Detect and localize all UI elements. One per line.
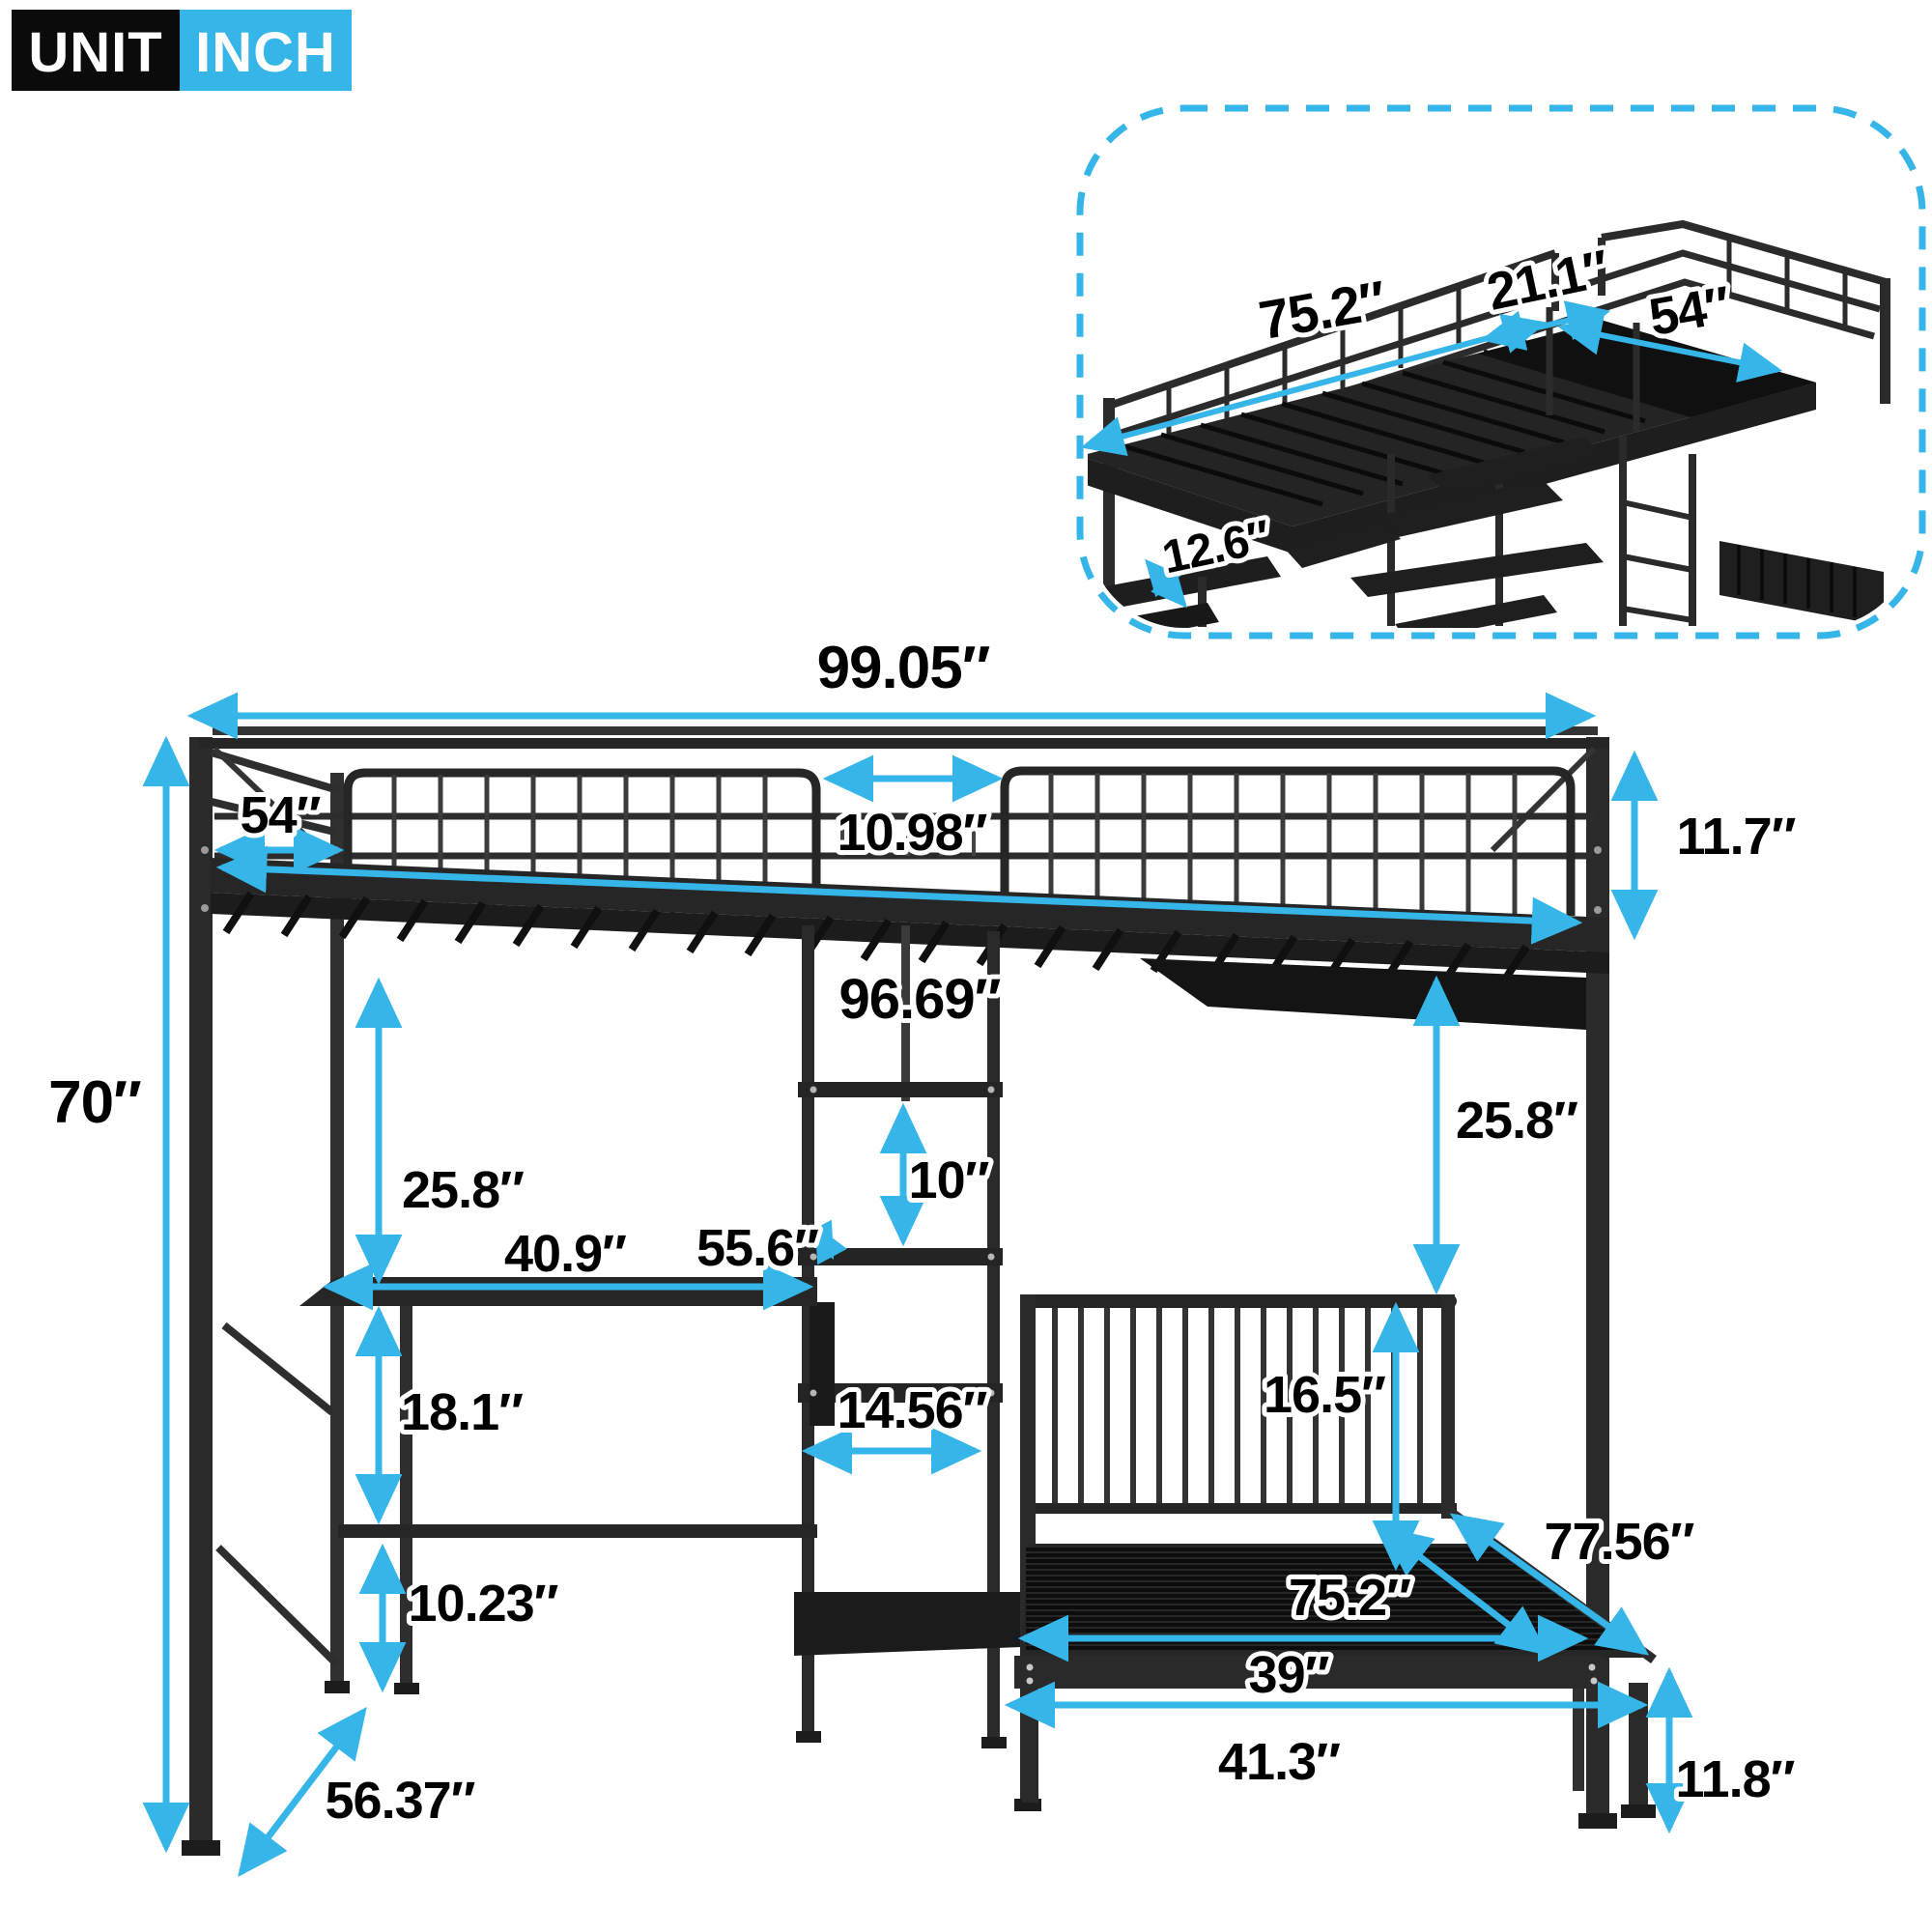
back-top-rail	[213, 726, 1598, 735]
dim-upper-frame-length: 96.69″	[839, 968, 1001, 1031]
dim-guardrail-opening: 10.98″	[838, 804, 987, 862]
dim-base-depth: 56.37″	[326, 1772, 475, 1830]
dim-lower-bed-width: 39″	[1249, 1646, 1329, 1704]
base-brace	[218, 1548, 336, 1663]
front-left-foot	[182, 1840, 220, 1856]
dim-desk-height: 55.6″	[696, 1219, 818, 1277]
rear-left-foot	[325, 1681, 350, 1693]
dim-stretcher-to-floor: 10.23″	[409, 1575, 558, 1633]
front-left-post	[189, 737, 213, 1846]
dim-headboard-height: 16.5″	[1264, 1366, 1385, 1424]
unit-badge: UNIT INCH	[12, 10, 352, 91]
dim-lower-frame-width: 41.3″	[1218, 1733, 1340, 1791]
desk-brace	[224, 1325, 332, 1412]
unit-badge-inch-text: INCH	[195, 21, 336, 84]
headboard-top-rail	[1020, 1294, 1457, 1308]
dim-desk-to-stretcher: 18.1″	[401, 1383, 523, 1441]
inset-detail-panel: 75.2″ 21.1″ 54″ 12.6″	[1049, 108, 1922, 652]
dim-shelf-spacing: 10″	[909, 1151, 989, 1209]
dim-guardrail-height: 11.7″	[1677, 808, 1796, 866]
lower-stretcher	[338, 1524, 817, 1538]
dim-lower-bed-height: 11.8″	[1676, 1750, 1795, 1808]
dim-lower-bed-length: 75.2″	[1289, 1569, 1410, 1627]
dim-desk-length: 40.9″	[504, 1225, 626, 1283]
dim-shelf-width: 14.56″	[838, 1381, 987, 1439]
headboard-bottom-rail	[1020, 1503, 1457, 1514]
dim-lower-total-length: 77.56″	[1545, 1513, 1694, 1571]
unit-badge-unit-text: UNIT	[28, 21, 162, 84]
front-right-foot	[1578, 1813, 1617, 1829]
headboard-right-post	[1441, 1294, 1455, 1519]
loft-bed-dimension-drawing: UNIT INCH	[0, 0, 1932, 1932]
dimension-diagram-page: UNIT INCH	[0, 0, 1932, 1932]
desk-bracket	[810, 1302, 835, 1426]
dim-upper-bed-depth: 54″	[241, 786, 321, 844]
dim-total-width: 99.05″	[817, 635, 990, 701]
guardrail-right-tube	[1005, 771, 1571, 916]
dim-total-height: 70″	[48, 1069, 141, 1136]
dim-right-under-clearance: 25.8″	[1456, 1092, 1577, 1150]
dim-left-under-clearance: 25.8″	[402, 1161, 524, 1219]
tower-shelf-1	[798, 1082, 1003, 1097]
front-top-rail	[199, 738, 1609, 749]
